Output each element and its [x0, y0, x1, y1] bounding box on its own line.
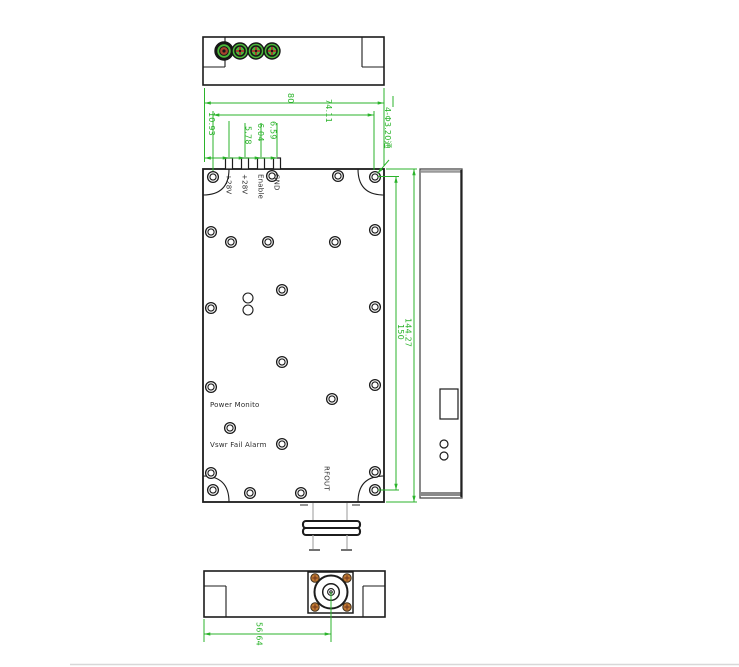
pin-label-enable: Enable [257, 174, 265, 199]
pin-label-28v-1: +28V [225, 174, 233, 194]
dim-holes-note: 4-Φ3.20通 [383, 107, 393, 149]
dc-pins [226, 158, 281, 169]
flange-screw-1 [311, 574, 319, 582]
dim-pin-offset: 10.93 [207, 112, 216, 136]
flange-screw-3 [311, 603, 319, 611]
flange-screw-4 [343, 603, 351, 611]
side-cutout [440, 389, 458, 419]
bottom-view [204, 571, 385, 617]
feedthrough-2 [232, 43, 248, 59]
flange-screw-2 [343, 574, 351, 582]
side-hole-2 [440, 452, 448, 460]
dim-hole-span-y: 144.27 [404, 318, 413, 347]
dim-pin-pitch-1: 5.78 [244, 126, 253, 145]
dim-rf-offset: 56.64 [255, 622, 264, 646]
pin-label-28v-2: +28V [241, 174, 249, 194]
feedthrough-4 [264, 43, 280, 59]
feedthrough-1 [216, 43, 232, 59]
top-view [203, 37, 384, 85]
power-monitor-label: Power Monito [210, 401, 260, 409]
rfout-label: RFOUT [323, 466, 331, 491]
front-view [203, 158, 384, 550]
dim-hole-span-x: 74.11 [324, 99, 333, 123]
side-hole-1 [440, 440, 448, 448]
pin-label-gnd: GND [273, 174, 281, 191]
feedthrough-3 [248, 43, 264, 59]
rf-module-mechanical-drawing: +28V +28V Enable GND Power Monito Vswr F… [0, 0, 739, 667]
dim-pin-pitch-3: 6.59 [269, 121, 278, 140]
side-view [420, 169, 462, 498]
dim-pin-pitch-2: 6.04 [256, 123, 265, 142]
dim-top-width: 80 [286, 93, 295, 104]
cad-drawing-canvas: +28V +28V Enable GND Power Monito Vswr F… [0, 0, 739, 667]
vswr-fail-alarm-label: Vswr Fail Alarm [210, 441, 267, 449]
rf-connector-hidden-view [300, 503, 360, 550]
